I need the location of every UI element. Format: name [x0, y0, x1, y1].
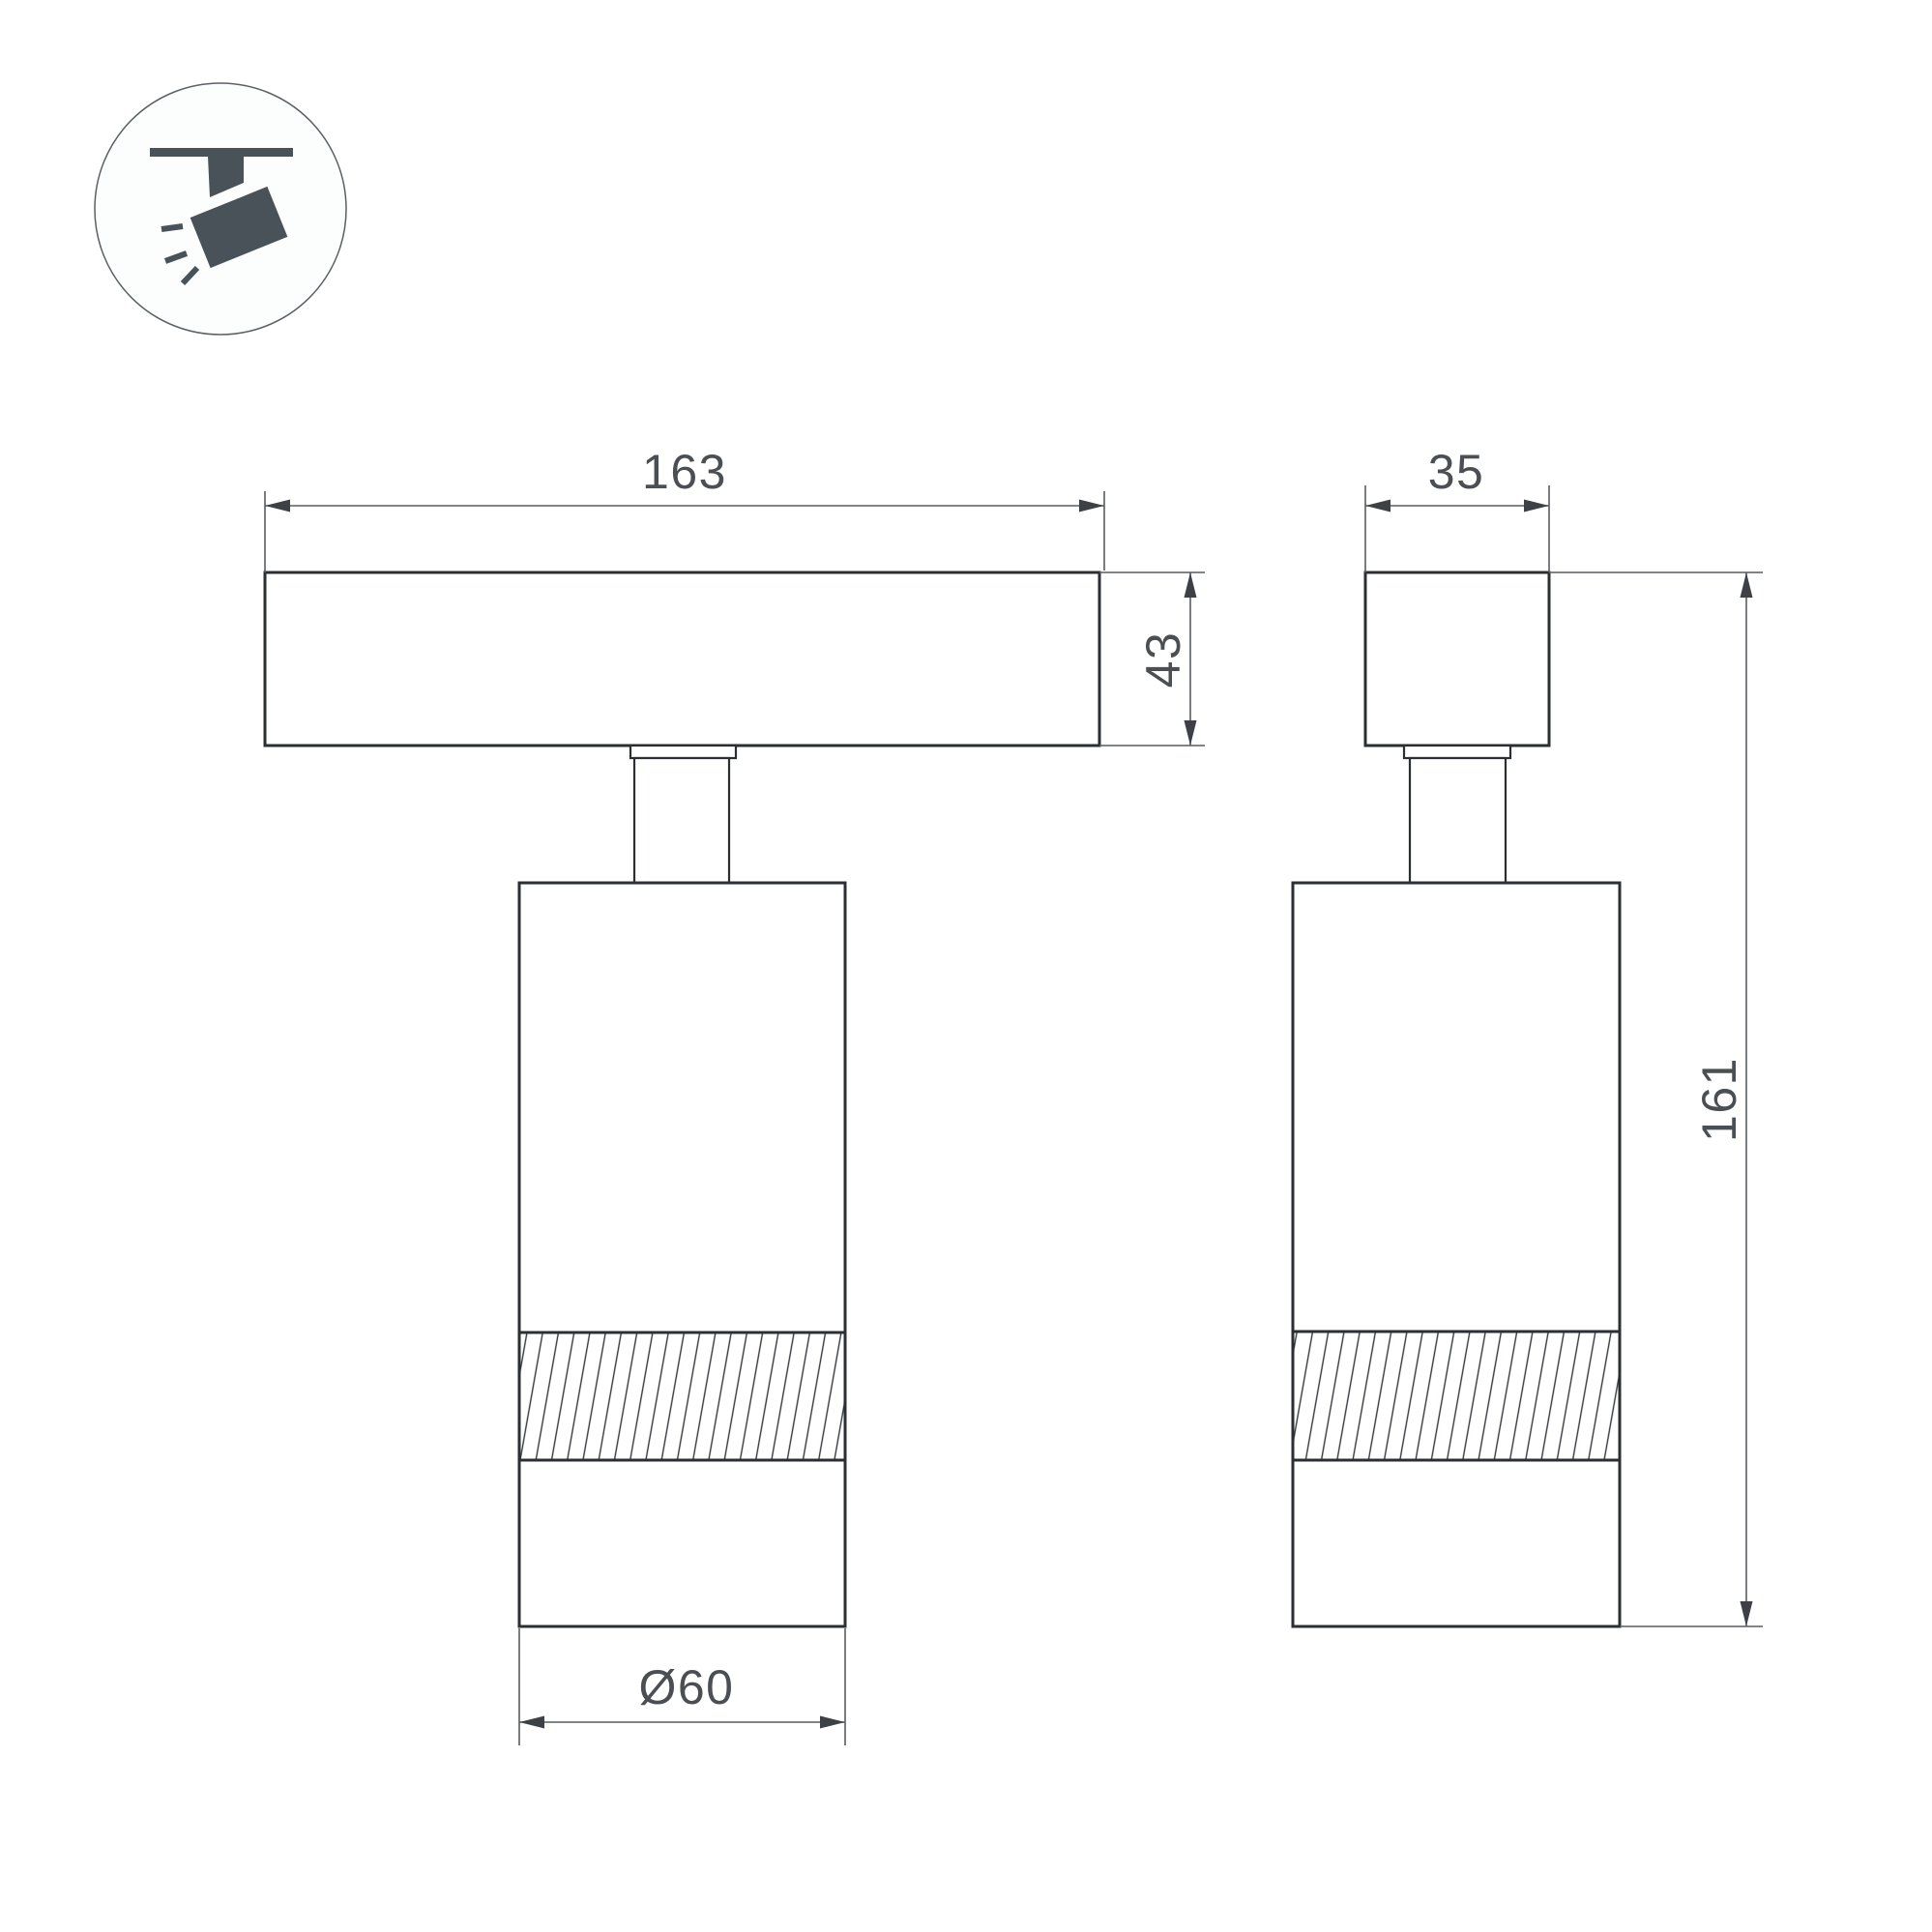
arrow-left-icon: [1365, 500, 1390, 512]
dimension-rail-depth: 35: [1365, 445, 1549, 572]
front-view: [265, 572, 1099, 1626]
dimension-label-total-height: 161: [1692, 1057, 1746, 1142]
front-adapter-flange: [630, 746, 736, 758]
dimension-label-rail-depth: 35: [1428, 445, 1485, 499]
side-cylinder-body: [1293, 883, 1620, 1626]
icon-track-bar: [150, 148, 293, 157]
arrow-up-icon: [1741, 572, 1753, 598]
front-cylinder-body: [519, 883, 845, 1626]
spotlight-dimension-drawing: 163 43 Ø60 35: [0, 0, 1932, 1932]
side-stem: [1410, 758, 1506, 883]
arrow-right-icon: [1524, 500, 1549, 512]
technical-drawing-page: 163 43 Ø60 35: [0, 0, 1932, 1932]
dimension-label-body-diameter: Ø60: [638, 1660, 734, 1714]
side-view: [1293, 572, 1620, 1626]
dimension-rail-width: 163: [265, 445, 1104, 572]
front-knurled-ring: [519, 1332, 845, 1460]
light-ray-icon: [161, 226, 183, 229]
dimension-rail-height: 43: [1099, 572, 1205, 746]
side-track-rail: [1365, 572, 1549, 746]
dimension-label-rail-height: 43: [1136, 631, 1190, 688]
arrow-down-icon: [1741, 1601, 1753, 1626]
arrow-left-icon: [265, 500, 290, 512]
dimension-label-rail-width: 163: [642, 445, 727, 499]
arrow-right-icon: [820, 1716, 845, 1729]
track-spotlight-icon: [95, 83, 346, 335]
arrow-right-icon: [1079, 500, 1104, 512]
front-track-rail: [265, 572, 1099, 746]
arrow-down-icon: [1185, 720, 1197, 746]
dimension-body-diameter: Ø60: [519, 1628, 845, 1745]
side-knurled-ring: [1293, 1332, 1620, 1460]
arrow-left-icon: [519, 1716, 544, 1729]
front-stem: [634, 758, 729, 883]
side-adapter-flange: [1404, 746, 1510, 758]
arrow-up-icon: [1185, 572, 1197, 598]
